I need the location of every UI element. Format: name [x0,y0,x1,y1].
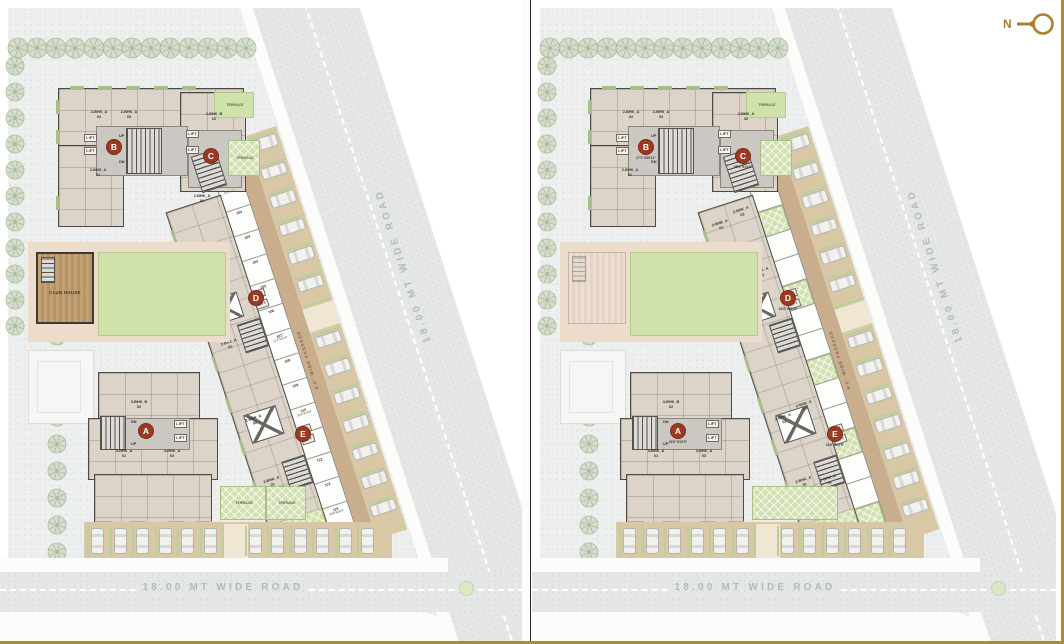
balcony [757,397,765,413]
balcony [56,130,60,144]
balcony [588,100,592,114]
hedge [132,526,134,556]
site-office [28,350,94,424]
panel-typical-floor-plan: 18.00 MT WIDE ROAD9'0" WIDE PASSAGELIFTL… [532,0,1056,644]
unit-label: 3-BHK_A03 [693,449,715,458]
hedge [889,526,891,556]
building-marker-D: D [780,290,796,306]
site-office [560,350,626,424]
balcony [98,86,112,90]
unit-label: 2-BHK_B02 [203,112,225,121]
hedge [777,526,779,556]
unit-label: 3-BHK_A03 [161,449,183,458]
tree-icon [5,134,25,154]
hedge [312,526,314,556]
club-house: CLUB HOUSE [36,252,94,324]
tree-icon [537,82,557,102]
bottom-parking-strip [616,522,924,560]
unit-label: 2-BHK_A01 [709,218,733,233]
unit-label: 2-BHK_A01 [87,168,109,177]
unit-label: 3-BHK_A01 [645,449,667,458]
lift-label: LIFT [616,134,629,142]
unit-label: 2-BHK_A01 [619,168,641,177]
terrace-label: TERRACE [221,501,267,505]
lawn [630,252,758,336]
unit-label: 3-BHK_B02 [660,400,682,409]
balcony [770,439,778,455]
hedge [642,526,644,556]
building-marker-C: C [735,148,751,164]
tree-icon [5,82,25,102]
unit-label: 2-BHK_A02 [620,110,642,119]
hedge [245,526,247,556]
bottom-footpath-lower [532,612,982,644]
terrace-label: TERRACE [747,103,787,107]
tree-icon [5,160,25,180]
car-icon [114,528,127,554]
building-marker-A: A [670,423,686,439]
car-icon [893,528,906,554]
hedge [844,526,846,556]
tree-icon [537,134,557,154]
tree-icon [537,316,557,336]
hedge [822,526,824,556]
panel-ground-floor-plan: 18.00 MT WIDE ROAD9'0" WIDE PASSAGE10110… [0,0,524,644]
tree-icon [47,461,67,481]
lift-label: LIFT [616,147,629,155]
tree-icon [5,290,25,310]
tree-icon [5,212,25,232]
panel-divider [530,0,532,644]
terrace-label: TERRACE [215,103,255,107]
lift-label: LIFT [174,434,187,442]
terrace [760,140,792,176]
tree-icon [47,488,67,508]
north-label: N [1003,17,1012,31]
car-icon [826,528,839,554]
tree-icon [235,37,257,59]
manhole-icon [459,581,474,596]
car-icon [159,528,172,554]
staircase-B [126,128,162,174]
stair-dn-label: DN [651,160,656,165]
lift-label: LIFT [84,134,97,142]
tree-icon [537,290,557,310]
hedge [177,526,179,556]
building-marker-E: E [295,426,311,442]
hedge [664,526,666,556]
hedge [799,526,801,556]
lift-label: LIFT [174,420,187,428]
staircase-A [632,416,658,450]
car-icon [668,528,681,554]
terrace: TERRACE [228,140,260,176]
unit-label: 2-BHK_A03 [118,110,140,119]
tree-icon [579,461,599,481]
stair-dn-label: DN [663,420,668,425]
balcony [211,355,219,371]
building-marker-dim: 17'1"X35'11" [624,156,668,160]
manhole-icon [991,581,1006,596]
unit-label: 2-BHK_A02 [735,112,757,121]
tree-icon [537,212,557,232]
car-icon [136,528,149,554]
top-margin [532,0,1056,8]
balcony [56,196,60,210]
car-icon [646,528,659,554]
stair-up-label: UP [131,442,136,447]
balcony [154,86,168,90]
building-marker-E: E [827,426,843,442]
balcony [56,100,60,114]
balcony [70,86,84,90]
bottom-footpath-upper [0,558,448,572]
building-marker-dim: 24'0"X23'9" [813,443,857,447]
club-house-label: CLUB HOUSE [38,290,92,295]
site-office-inner [569,361,613,413]
building-A-low [94,474,212,524]
club-house-stairs [41,257,55,283]
staircase-A [100,416,126,450]
tree-icon [537,238,557,258]
tree-icon [47,434,67,454]
balcony [126,86,140,90]
balcony [588,130,592,144]
hedge [267,526,269,556]
hedge [290,526,292,556]
car-icon [204,528,217,554]
site-office-inner [37,361,81,413]
car-icon [781,528,794,554]
stair-dn-label: DN [119,160,124,165]
tree-icon [5,108,25,128]
tree-icon [537,186,557,206]
hedge [87,526,89,556]
balcony [225,397,233,413]
balcony [182,86,196,90]
car-icon [691,528,704,554]
balcony [630,86,644,90]
lift-label: LIFT [84,147,97,155]
car-icon [713,528,726,554]
site-plan-canvas: 18.00 MT WIDE ROAD9'0" WIDE PASSAGE10110… [0,0,1064,644]
car-icon [623,528,636,554]
hedge [867,526,869,556]
hedge [732,526,734,556]
balcony [714,86,728,90]
hedge [335,526,337,556]
balcony [743,355,751,371]
building-A-low [626,474,744,524]
tree-icon [5,316,25,336]
tree-icon [5,186,25,206]
building-marker-C: C [203,148,219,164]
car-icon [294,528,307,554]
hedge [687,526,689,556]
building-marker-B: B [638,139,654,155]
tree-icon [579,488,599,508]
car-icon [181,528,194,554]
bottom-road-label: 18.00 MT WIDE ROAD [670,582,840,595]
stair-dn-label: DN [131,420,136,425]
tree-icon [579,434,599,454]
car-icon [803,528,816,554]
tree-icon [5,264,25,284]
car-icon [249,528,262,554]
lift-label: LIFT [186,146,199,154]
tree-icon [537,264,557,284]
car-icon [339,528,352,554]
tree-icon [5,238,25,258]
tree-icon [537,108,557,128]
balcony [238,439,246,455]
terrace: TERRACE [266,486,306,520]
building-marker-dim: 25'9"X13'6" [721,165,765,169]
lift-label: LIFT [706,420,719,428]
balcony [588,196,592,210]
car-icon [848,528,861,554]
building-marker-D: D [248,290,264,306]
bottom-footpath-lower [0,612,450,644]
car-icon [736,528,749,554]
bottom-road-label: 18.00 MT WIDE ROAD [138,582,308,595]
bottom-parking-strip [84,522,392,560]
terrace: TERRACE [220,486,266,520]
balcony [686,86,700,90]
building-marker-dim: 24'0"X20'0" [766,307,810,311]
lift-label: LIFT [186,130,199,138]
club-house-stairs [572,256,586,282]
balcony [658,86,672,90]
car-icon [871,528,884,554]
balcony [602,86,616,90]
lawn [98,252,226,336]
north-arrow-icon [1016,10,1056,38]
building-marker-A: A [138,423,154,439]
tree-icon [767,37,789,59]
unit-label: 3-BHK_A01 [113,449,135,458]
stair-up-label: UP [651,134,656,139]
hedge [619,526,621,556]
tree-icon [537,160,557,180]
hedge [357,526,359,556]
unit-label: 2-BHK_A02 [191,194,213,203]
bottom-footpath-upper [532,558,980,572]
lift-label: LIFT [706,434,719,442]
car-icon [316,528,329,554]
unit-label: 3-BHK_B02 [128,400,150,409]
hedge [155,526,157,556]
car-icon [271,528,284,554]
building-marker-dim: 20'0"X13'9" [656,440,700,444]
tree-icon [537,56,557,76]
staircase-B [658,128,694,174]
terrace-label: TERRACE [229,156,261,160]
car-icon [361,528,374,554]
north-arrow: N [1003,10,1056,38]
hedge [110,526,112,556]
tree-icon [5,56,25,76]
unit-label: 2-BHK_A03 [730,205,754,220]
stair-up-label: UP [119,134,124,139]
hedge [709,526,711,556]
car-icon [91,528,104,554]
hedge [200,526,202,556]
tree-icon [579,515,599,535]
lift-label: LIFT [718,130,731,138]
top-margin [0,0,524,8]
terrace-label: TERRACE [267,501,307,505]
unit-label: 2-BHK_A02 [88,110,110,119]
unit-label: 2-BHK_A03 [650,110,672,119]
terrace [752,486,838,520]
tree-icon [47,515,67,535]
club-house [568,252,626,324]
building-marker-B: B [106,139,122,155]
lift-label: LIFT [718,146,731,154]
